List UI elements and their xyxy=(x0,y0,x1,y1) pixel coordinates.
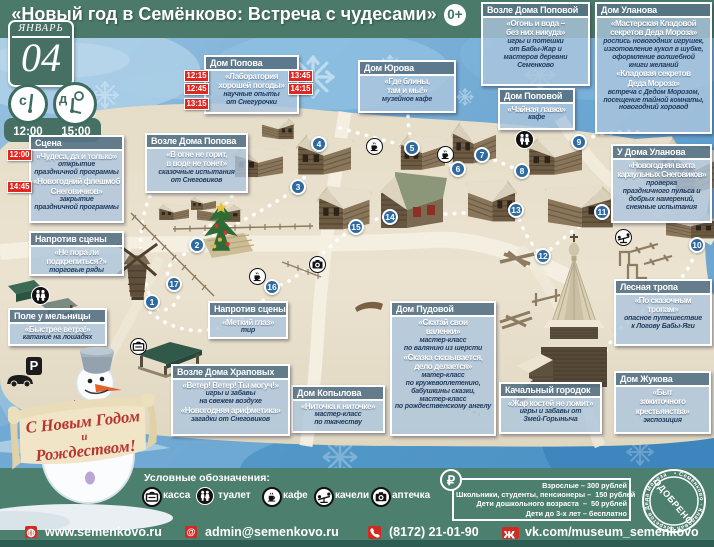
svg-text:д: д xyxy=(59,91,68,106)
svg-text:с: с xyxy=(19,92,27,108)
